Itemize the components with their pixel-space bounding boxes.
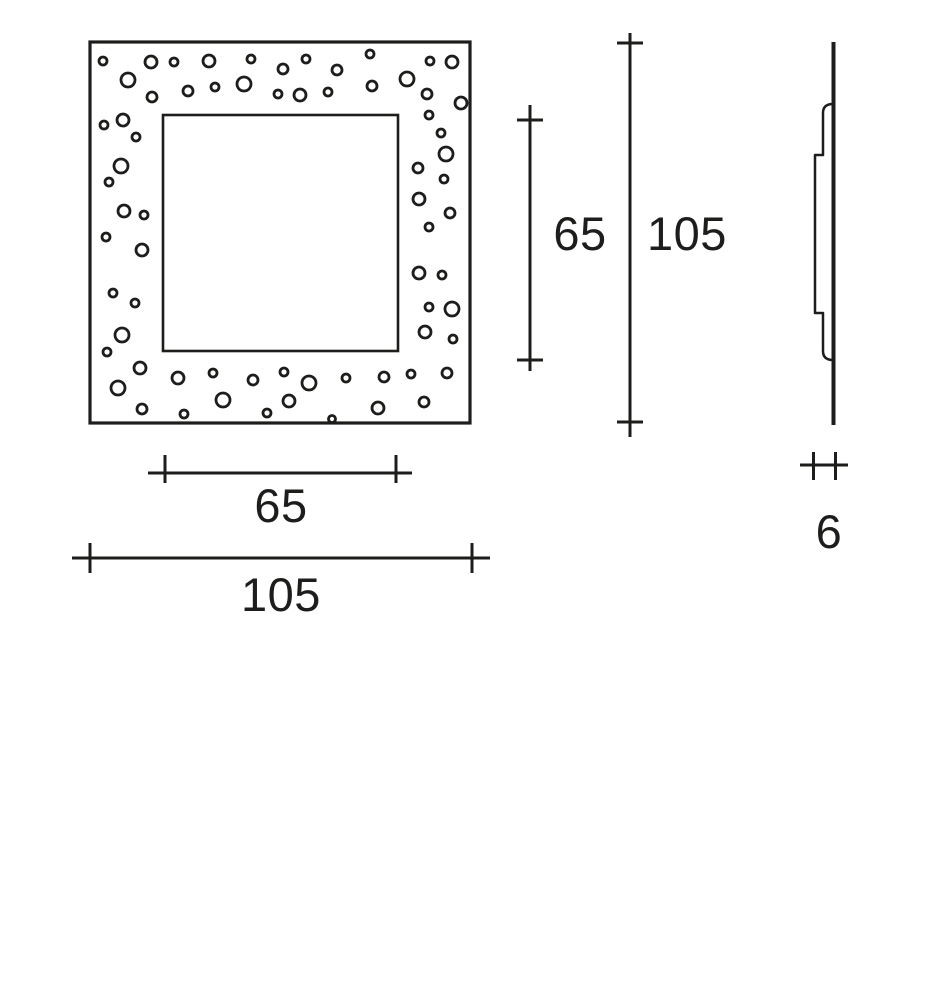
dimension-window-width: 65	[148, 455, 412, 532]
bubble-dot	[263, 409, 271, 417]
bubble-dot	[180, 410, 188, 418]
bubble-dot	[332, 65, 342, 75]
bubble-dot	[170, 58, 178, 66]
bubble-dot	[203, 55, 215, 67]
front-inner-window	[163, 115, 398, 351]
bubble-dot	[114, 159, 128, 173]
bubble-dot	[400, 72, 414, 86]
bubble-dot	[99, 57, 107, 65]
dimension-plate-width: 105	[72, 543, 490, 621]
dimension-plate-height-label: 105	[647, 207, 727, 260]
bubble-dot	[278, 64, 288, 74]
dimension-window-height: 65	[517, 105, 607, 371]
bubble-dot	[131, 299, 139, 307]
bubble-dot	[216, 393, 230, 407]
bubble-dot	[425, 303, 433, 311]
bubble-dot	[134, 362, 146, 374]
bubble-dot	[145, 56, 157, 68]
bubble-dot	[367, 81, 377, 91]
bubble-dot	[419, 326, 431, 338]
bubble-dot	[137, 404, 147, 414]
bubble-dot	[115, 328, 129, 342]
dimension-window-height-label: 65	[553, 207, 606, 260]
dimension-annotations: 65105651056	[72, 33, 848, 621]
bubble-dot	[103, 348, 111, 356]
bubble-dot	[247, 55, 255, 63]
dimension-plate-thickness: 6	[800, 452, 848, 558]
bubble-dot	[183, 86, 193, 96]
bubble-dot	[105, 178, 113, 186]
bubble-dot	[324, 88, 332, 96]
bubble-dot	[413, 267, 425, 279]
bubble-dot	[442, 368, 452, 378]
bubble-dot	[121, 73, 135, 87]
side-mounting-profile	[815, 104, 832, 360]
bubble-dot	[437, 129, 445, 137]
bubble-dot	[147, 92, 157, 102]
bubble-dot	[302, 55, 310, 63]
bubble-dot	[111, 381, 125, 395]
bubble-dot	[132, 133, 140, 141]
bubble-dot	[209, 369, 217, 377]
dimension-window-width-label: 65	[254, 479, 307, 532]
bubble-dot	[425, 223, 433, 231]
bubble-dot	[302, 376, 316, 390]
bubble-pattern	[99, 50, 467, 423]
bubble-dot	[426, 57, 434, 65]
technical-drawing: 65105651056	[0, 0, 932, 1000]
dimension-plate-width-label: 105	[241, 568, 321, 621]
bubble-dot	[102, 233, 110, 241]
bubble-dot	[280, 368, 288, 376]
bubble-dot	[100, 121, 108, 129]
bubble-dot	[440, 175, 448, 183]
bubble-dot	[422, 89, 432, 99]
bubble-dot	[172, 372, 184, 384]
bubble-dot	[237, 77, 251, 91]
bubble-dot	[425, 111, 433, 119]
bubble-dot	[438, 271, 446, 279]
dimension-plate-thickness-label: 6	[816, 505, 843, 558]
dimension-plate-height: 105	[617, 33, 727, 437]
bubble-dot	[342, 374, 350, 382]
bubble-dot	[118, 205, 130, 217]
bubble-dot	[407, 370, 415, 378]
side-view	[815, 42, 834, 425]
bubble-dot	[446, 56, 458, 68]
bubble-dot	[439, 147, 453, 161]
bubble-dot	[283, 395, 295, 407]
bubble-dot	[445, 302, 459, 316]
bubble-dot	[455, 97, 467, 109]
bubble-dot	[419, 397, 429, 407]
bubble-dot	[294, 89, 306, 101]
drawing-page: 65105651056	[0, 0, 932, 1000]
bubble-dot	[413, 193, 425, 205]
bubble-dot	[372, 402, 384, 414]
bubble-dot	[449, 335, 457, 343]
bubble-dot	[274, 90, 282, 98]
bubble-dot	[413, 163, 423, 173]
bubble-dot	[117, 114, 129, 126]
bubble-dot	[136, 244, 148, 256]
bubble-dot	[379, 372, 389, 382]
bubble-dot	[329, 416, 336, 423]
bubble-dot	[140, 211, 148, 219]
bubble-dot	[109, 289, 117, 297]
bubble-dot	[248, 375, 258, 385]
bubble-dot	[366, 50, 374, 58]
bubble-dot	[211, 83, 219, 91]
bubble-dot	[445, 208, 455, 218]
front-view	[90, 42, 470, 423]
